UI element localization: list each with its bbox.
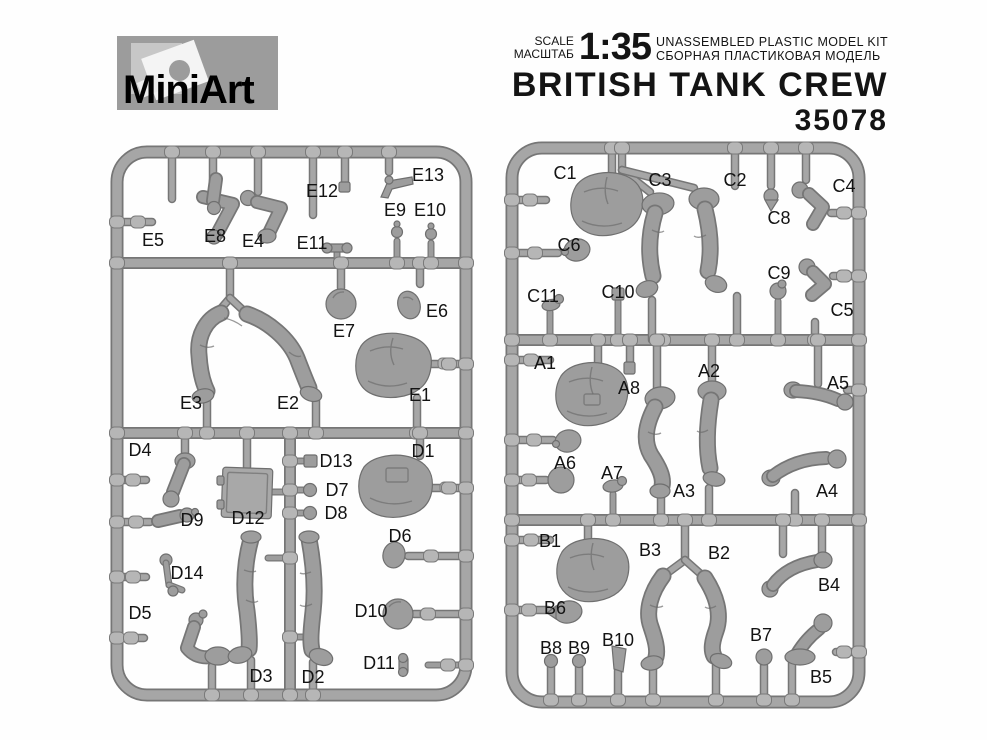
part-e7-helmet (326, 289, 356, 319)
part-d8 (304, 507, 317, 520)
part-d3-leg (245, 539, 251, 649)
part-b10 (612, 646, 626, 672)
part-a6-ball (548, 467, 574, 493)
part-d9-hand (158, 516, 180, 521)
part-e6-head (394, 288, 424, 321)
part-e8-arm (213, 179, 216, 201)
part-d7 (304, 484, 317, 497)
part-b7 (756, 649, 772, 665)
part-e12 (339, 182, 350, 192)
part-e9 (392, 227, 403, 238)
part-d13 (304, 455, 317, 467)
sprue-c-a-b-diagram (505, 142, 867, 706)
part-e10 (426, 229, 437, 240)
part-d1-torso (359, 455, 433, 517)
part-d10-helmet (383, 599, 413, 629)
sprue-diagrams (0, 0, 987, 740)
instruction-sheet: MiniArt SCALE МАСШТАБ 1:35 UNASSEMBLED P… (0, 0, 987, 740)
sprue-e-d-diagram (110, 146, 474, 701)
part-b6-head (552, 599, 583, 626)
part-e1-torso (356, 333, 432, 397)
part-b9 (573, 655, 586, 668)
part-d12-hatch (221, 467, 273, 519)
part-a8 (624, 362, 635, 374)
part-b8 (545, 655, 558, 668)
part-e2-legs (247, 314, 309, 388)
part-c10 (612, 288, 624, 300)
part-d2-leg (309, 539, 314, 650)
part-d6-head (381, 540, 408, 570)
